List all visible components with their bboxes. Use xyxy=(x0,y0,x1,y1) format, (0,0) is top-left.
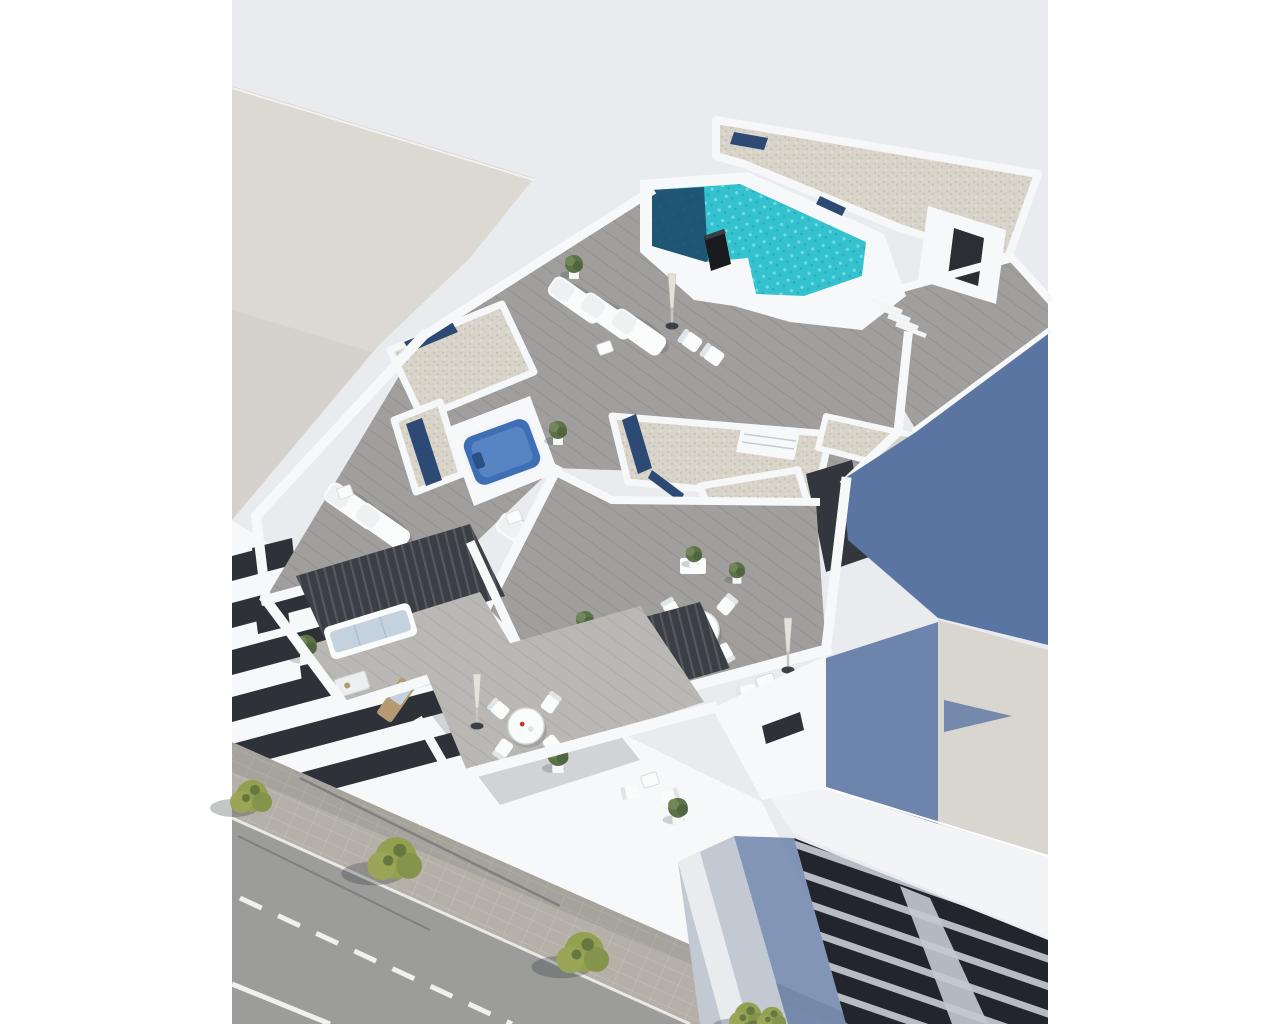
render-viewport xyxy=(0,0,1280,1024)
beige-roof xyxy=(938,620,1048,856)
scene-svg xyxy=(0,0,1280,1024)
